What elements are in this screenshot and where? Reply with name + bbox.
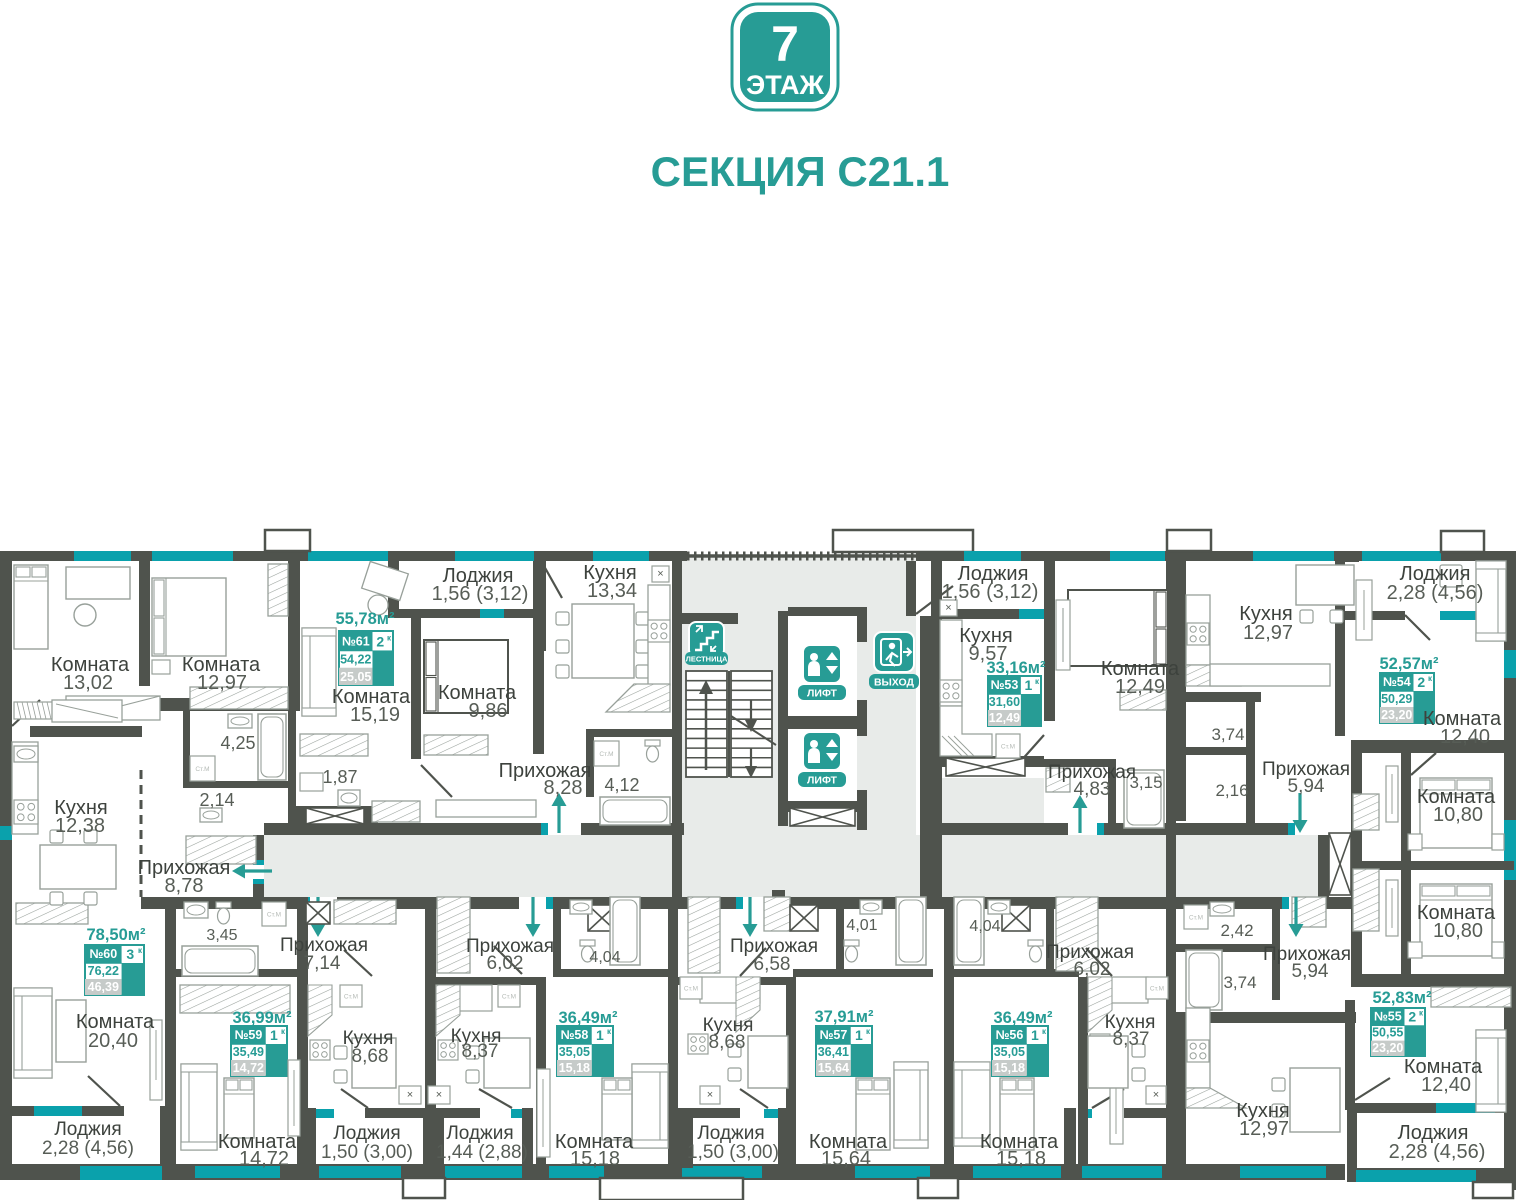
svg-text:52,57м²: 52,57м² bbox=[1380, 655, 1439, 673]
svg-text:1,56 (3,12): 1,56 (3,12) bbox=[942, 581, 1039, 603]
svg-text:3: 3 bbox=[126, 946, 134, 962]
svg-text:15,18: 15,18 bbox=[994, 1061, 1025, 1075]
svg-text:14,72: 14,72 bbox=[239, 1148, 289, 1170]
svg-text:23,20: 23,20 bbox=[1372, 1041, 1403, 1055]
svg-text:5,94: 5,94 bbox=[1292, 961, 1329, 982]
svg-text:8,68: 8,68 bbox=[709, 1032, 746, 1053]
svg-text:Ст.М: Ст.М bbox=[1189, 915, 1203, 922]
svg-text:Лоджия: Лоджия bbox=[54, 1119, 121, 1140]
svg-text:№54: №54 bbox=[1383, 675, 1411, 689]
svg-text:10,80: 10,80 bbox=[1433, 804, 1483, 826]
svg-text:2,14: 2,14 bbox=[199, 790, 234, 810]
svg-text:15,18: 15,18 bbox=[559, 1061, 590, 1075]
svg-text:13,02: 13,02 bbox=[63, 672, 113, 694]
svg-text:7: 7 bbox=[771, 16, 799, 72]
svg-text:Лоджия: Лоджия bbox=[446, 1123, 513, 1144]
svg-text:3,74: 3,74 bbox=[1211, 725, 1244, 744]
svg-text:×: × bbox=[707, 1089, 713, 1101]
svg-text:№56: №56 bbox=[995, 1028, 1023, 1042]
svg-text:Ст.М: Ст.М bbox=[267, 912, 281, 919]
svg-text:1: 1 bbox=[1025, 677, 1033, 693]
svg-text:23,20: 23,20 bbox=[1381, 708, 1412, 722]
svg-text:4,04: 4,04 bbox=[969, 918, 1000, 935]
svg-text:Ст.М: Ст.М bbox=[599, 751, 613, 758]
svg-text:Лоджия: Лоджия bbox=[333, 1123, 400, 1144]
svg-text:2: 2 bbox=[376, 633, 384, 649]
svg-text:№59: №59 bbox=[234, 1028, 262, 1042]
svg-text:×: × bbox=[436, 1089, 442, 1101]
svg-text:10,80: 10,80 bbox=[1433, 920, 1483, 942]
svg-text:7,14: 7,14 bbox=[304, 953, 341, 974]
svg-text:12,40: 12,40 bbox=[1421, 1074, 1471, 1096]
svg-text:ЭТАЖ: ЭТАЖ bbox=[746, 70, 824, 100]
svg-text:1,44 (2,88): 1,44 (2,88) bbox=[436, 1142, 528, 1163]
svg-text:№61: №61 bbox=[342, 634, 370, 648]
svg-text:№60: №60 bbox=[89, 947, 117, 961]
svg-text:15,64: 15,64 bbox=[818, 1061, 849, 1075]
svg-text:4,83: 4,83 bbox=[1074, 779, 1111, 800]
svg-text:20,40: 20,40 bbox=[88, 1030, 138, 1052]
svg-text:1: 1 bbox=[1031, 1027, 1039, 1043]
svg-text:50,55: 50,55 bbox=[1372, 1026, 1403, 1040]
svg-text:1,50 (3,00): 1,50 (3,00) bbox=[687, 1142, 779, 1163]
svg-text:4,25: 4,25 bbox=[220, 733, 255, 753]
svg-text:ВЫХОД: ВЫХОД bbox=[874, 677, 915, 689]
svg-text:№53: №53 bbox=[991, 678, 1019, 692]
svg-text:15,18: 15,18 bbox=[996, 1148, 1046, 1170]
svg-text:3,45: 3,45 bbox=[206, 927, 237, 944]
svg-text:76,22: 76,22 bbox=[88, 964, 119, 978]
svg-text:4,04: 4,04 bbox=[589, 949, 620, 966]
svg-text:×: × bbox=[945, 602, 951, 614]
svg-text:12,38: 12,38 bbox=[55, 815, 105, 837]
svg-text:Ст.М: Ст.М bbox=[195, 766, 209, 773]
svg-text:33,16м²: 33,16м² bbox=[987, 659, 1046, 677]
svg-text:36,49м²: 36,49м² bbox=[994, 1009, 1053, 1027]
svg-text:54,22: 54,22 bbox=[340, 653, 371, 667]
svg-text:8,68: 8,68 bbox=[352, 1046, 389, 1067]
svg-text:×: × bbox=[657, 568, 663, 580]
svg-text:12,49: 12,49 bbox=[989, 711, 1020, 725]
svg-text:35,05: 35,05 bbox=[994, 1045, 1025, 1059]
svg-text:36,41: 36,41 bbox=[818, 1045, 849, 1059]
svg-text:8,37: 8,37 bbox=[1113, 1029, 1150, 1050]
svg-text:50,29: 50,29 bbox=[1381, 692, 1412, 706]
svg-text:Ст.М: Ст.М bbox=[1001, 744, 1015, 751]
svg-text:Ст.М: Ст.М bbox=[502, 994, 516, 1001]
svg-text:2: 2 bbox=[1408, 1008, 1416, 1024]
svg-text:2,28 (4,56): 2,28 (4,56) bbox=[42, 1138, 134, 1159]
svg-text:№55: №55 bbox=[1374, 1009, 1402, 1023]
svg-text:12,49: 12,49 bbox=[1115, 676, 1165, 698]
svg-text:78,50м²: 78,50м² bbox=[87, 926, 146, 944]
svg-text:12,40: 12,40 bbox=[1440, 726, 1490, 748]
svg-text:35,49: 35,49 bbox=[233, 1045, 264, 1059]
svg-text:СЕКЦИЯ С21.1: СЕКЦИЯ С21.1 bbox=[651, 148, 950, 195]
svg-text:1,56 (3,12): 1,56 (3,12) bbox=[432, 583, 529, 605]
svg-text:2,28 (4,56): 2,28 (4,56) bbox=[1389, 1141, 1486, 1163]
svg-text:25,05: 25,05 bbox=[340, 670, 371, 684]
svg-text:36,49м²: 36,49м² bbox=[559, 1009, 618, 1027]
svg-text:1: 1 bbox=[855, 1027, 863, 1043]
svg-text:6,02: 6,02 bbox=[487, 953, 524, 974]
svg-text:3,74: 3,74 bbox=[1223, 973, 1256, 992]
svg-text:8,37: 8,37 bbox=[462, 1041, 499, 1062]
svg-text:ЛИФТ: ЛИФТ bbox=[807, 688, 837, 700]
svg-text:№58: №58 bbox=[560, 1028, 588, 1042]
svg-text:Ст.М: Ст.М bbox=[344, 994, 358, 1001]
svg-text:ЛЕСТНИЦА: ЛЕСТНИЦА bbox=[686, 655, 728, 664]
svg-text:№57: №57 bbox=[819, 1028, 847, 1042]
svg-text:4,01: 4,01 bbox=[846, 917, 877, 934]
svg-text:15,64: 15,64 bbox=[821, 1148, 871, 1170]
svg-text:ЛИФТ: ЛИФТ bbox=[807, 775, 837, 787]
svg-text:2,28 (4,56): 2,28 (4,56) bbox=[1387, 582, 1484, 604]
svg-text:8,28: 8,28 bbox=[544, 777, 583, 799]
svg-text:Ст.М: Ст.М bbox=[1150, 986, 1164, 993]
svg-text:14,72: 14,72 bbox=[233, 1061, 264, 1075]
svg-text:8,78: 8,78 bbox=[165, 875, 204, 897]
svg-text:Ст.М: Ст.М bbox=[684, 986, 698, 993]
svg-text:13,34: 13,34 bbox=[587, 580, 637, 602]
svg-text:12,97: 12,97 bbox=[1243, 622, 1293, 644]
svg-text:35,05: 35,05 bbox=[559, 1045, 590, 1059]
svg-text:2: 2 bbox=[1417, 674, 1425, 690]
svg-text:5,94: 5,94 bbox=[1288, 776, 1325, 797]
svg-text:52,83м²: 52,83м² bbox=[1373, 989, 1432, 1007]
svg-text:36,99м²: 36,99м² bbox=[233, 1009, 292, 1027]
svg-text:15,18: 15,18 bbox=[570, 1148, 620, 1170]
svg-text:55,78м²: 55,78м² bbox=[336, 610, 395, 628]
svg-text:2,42: 2,42 bbox=[1220, 921, 1253, 940]
svg-text:2,16: 2,16 bbox=[1215, 781, 1248, 800]
svg-text:3,15: 3,15 bbox=[1129, 773, 1162, 792]
svg-text:37,91м²: 37,91м² bbox=[815, 1008, 874, 1026]
svg-text:×: × bbox=[407, 1089, 413, 1101]
svg-text:9,86: 9,86 bbox=[469, 700, 508, 722]
svg-text:1,87: 1,87 bbox=[322, 767, 357, 787]
svg-text:6,02: 6,02 bbox=[1074, 959, 1111, 980]
svg-text:6,58: 6,58 bbox=[754, 954, 791, 975]
svg-text:12,97: 12,97 bbox=[1239, 1118, 1289, 1140]
svg-text:1: 1 bbox=[596, 1027, 604, 1043]
svg-text:1,50 (3,00): 1,50 (3,00) bbox=[321, 1142, 413, 1163]
svg-text:15,19: 15,19 bbox=[350, 704, 400, 726]
svg-text:1: 1 bbox=[270, 1027, 278, 1043]
svg-text:4,12: 4,12 bbox=[604, 775, 639, 795]
svg-text:31,60: 31,60 bbox=[989, 695, 1020, 709]
svg-text:×: × bbox=[1153, 1089, 1159, 1101]
svg-text:12,97: 12,97 bbox=[197, 672, 247, 694]
svg-text:46,39: 46,39 bbox=[88, 980, 119, 994]
svg-text:Лоджия: Лоджия bbox=[697, 1123, 764, 1144]
